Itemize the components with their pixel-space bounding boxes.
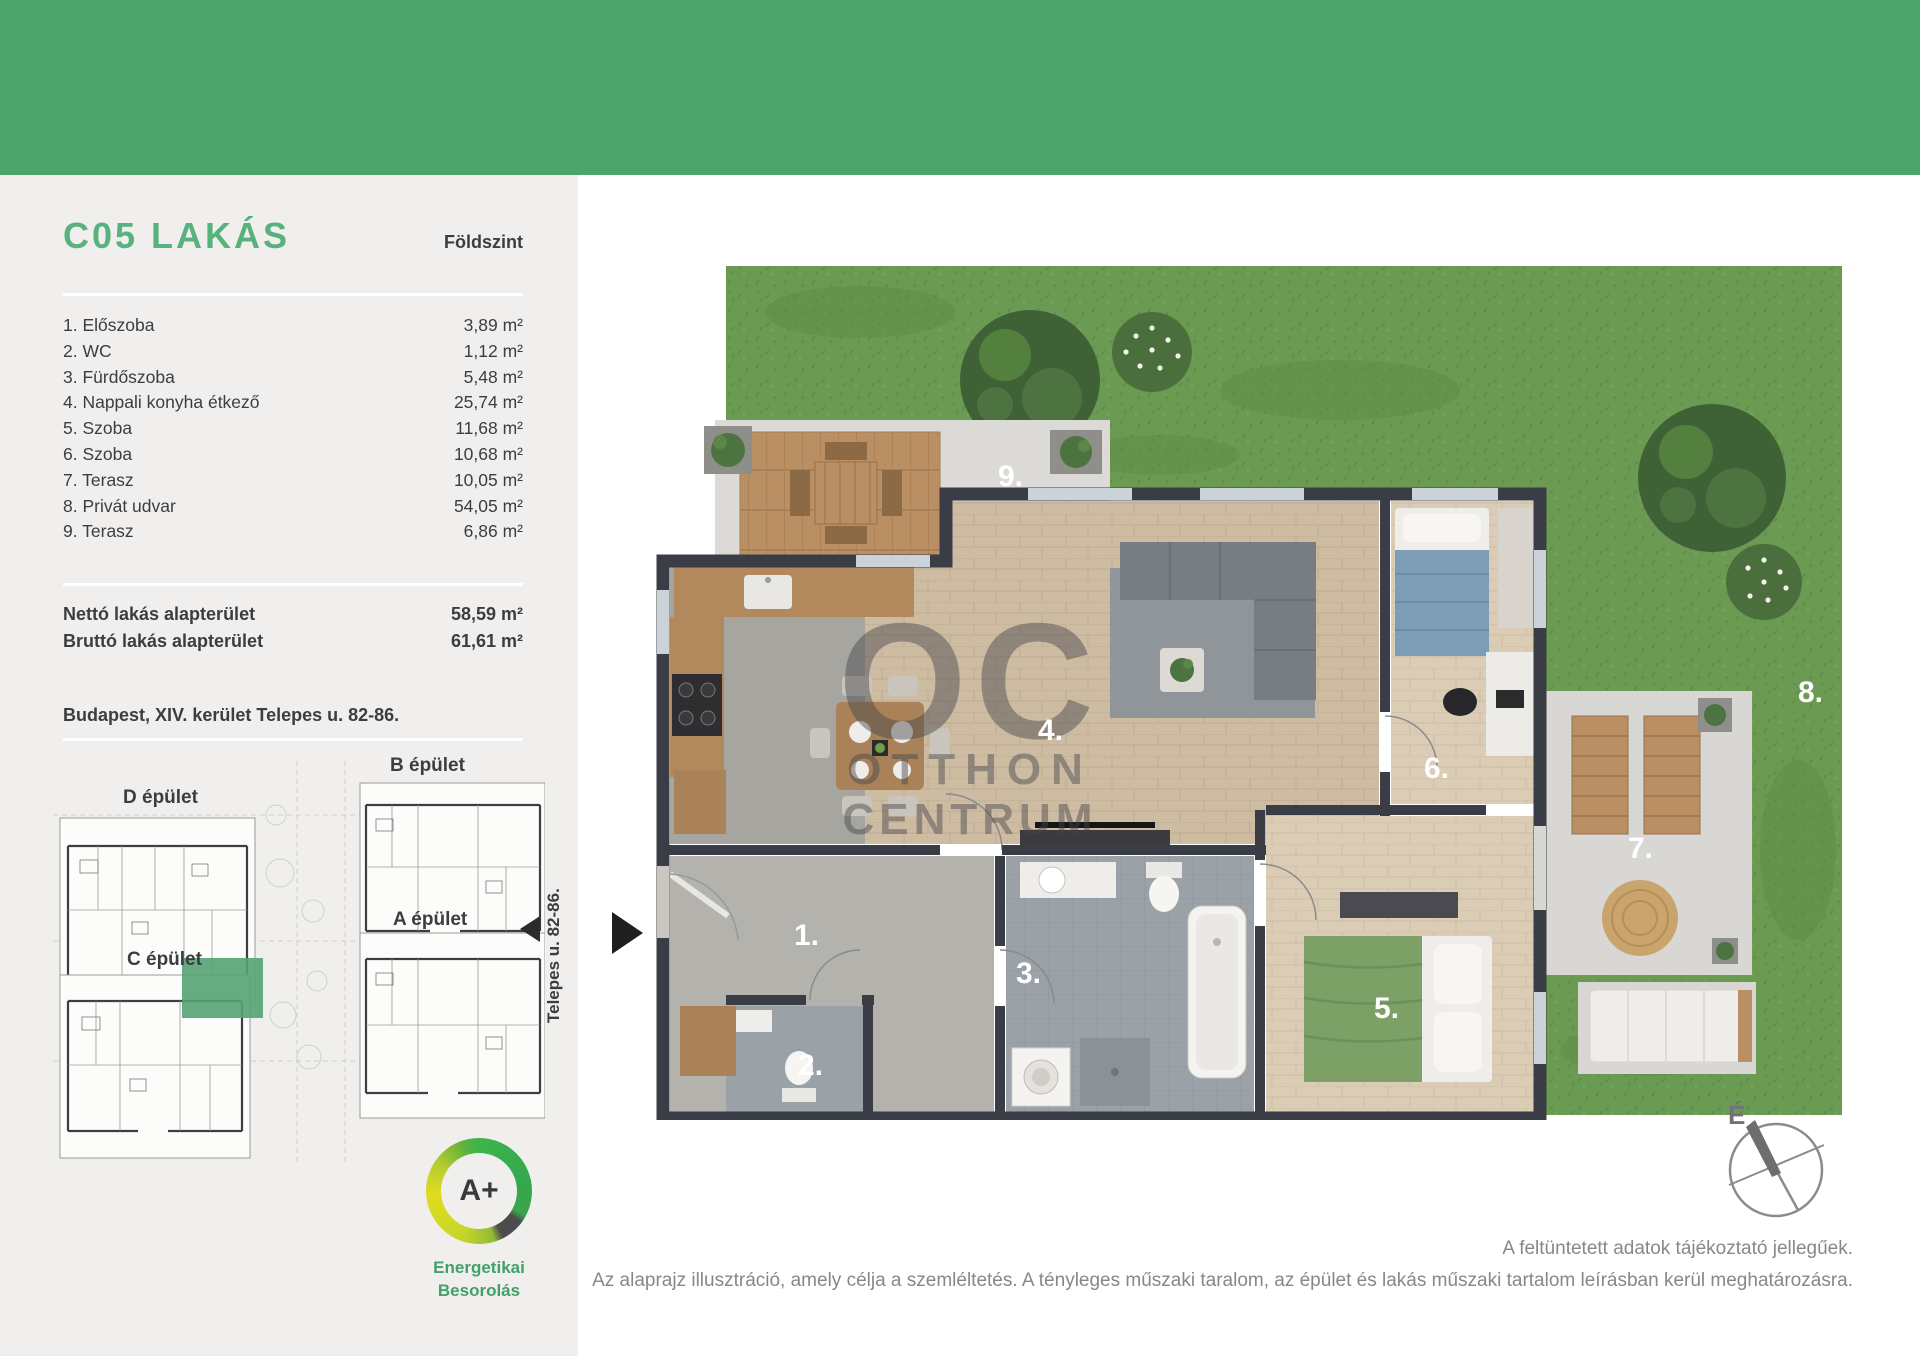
sidebar: C05 LAKÁS Földszint 1. Előszoba3,89 m² 2… [0, 175, 578, 1356]
room-area: 1,12 m² [464, 339, 523, 365]
room-area: 54,05 m² [454, 494, 523, 520]
garden-daybed [1578, 982, 1756, 1074]
cooktop [672, 674, 722, 736]
total-net-row: Nettó lakás alapterület58,59 m² [63, 601, 523, 628]
lounger [1644, 716, 1700, 834]
room-row: 4. Nappali konyha étkező25,74 m² [63, 390, 523, 416]
entrance-opening [657, 866, 669, 938]
room-number-4: 4. [1038, 714, 1063, 747]
room6-bed [1395, 508, 1489, 656]
room-row: 8. Privát udvar54,05 m² [63, 494, 523, 520]
terrace-door-opening [1534, 826, 1546, 910]
room-row: 6. Szoba10,68 m² [63, 442, 523, 468]
watermark-otthon: OTTHON [847, 745, 1093, 794]
room-number-9: 9. [998, 460, 1023, 493]
room-label: 9. Terasz [63, 519, 134, 545]
compass: É [1720, 1092, 1855, 1237]
divider-top [63, 293, 523, 296]
tree-right [1638, 404, 1786, 552]
room-label: 5. Szoba [63, 416, 132, 442]
compass-needle-tail [1776, 1170, 1798, 1210]
brochure-page: C05 LAKÁS Földszint 1. Előszoba3,89 m² 2… [0, 0, 1920, 1356]
room-area: 11,68 m² [455, 416, 523, 442]
address: Budapest, XIV. kerület Telepes u. 82-86. [63, 705, 523, 726]
room-row: 1. Előszoba3,89 m² [63, 313, 523, 339]
energy-label: Energetikai Besorolás [424, 1256, 534, 1302]
room-row: 5. Szoba11,68 m² [63, 416, 523, 442]
energy-badge: A+ Energetikai Besorolás [424, 1138, 534, 1302]
floor-label: Földszint [444, 232, 523, 253]
room-number-8: 8. [1798, 676, 1823, 709]
total-net-label: Nettó lakás alapterület [63, 601, 255, 628]
room-number-5: 5. [1374, 992, 1399, 1025]
room-area: 6,86 m² [464, 519, 523, 545]
room-label: 4. Nappali konyha étkező [63, 390, 260, 416]
flower-bush-top [1112, 312, 1192, 392]
total-gross-label: Bruttó lakás alapterület [63, 628, 263, 655]
room-label: 1. Előszoba [63, 313, 154, 339]
terrace9-deck [740, 432, 940, 561]
room-label: 7. Terasz [63, 468, 134, 494]
totals: Nettó lakás alapterület58,59 m² Bruttó l… [63, 601, 523, 655]
divider-address [63, 738, 523, 741]
energy-rating: A+ [441, 1153, 517, 1229]
room-row: 9. Terasz6,86 m² [63, 519, 523, 545]
flower-bush-right [1726, 544, 1802, 620]
siteplan-drawing: D épület B épület A épület C épület [45, 753, 545, 1173]
room-number-6: 6. [1424, 752, 1449, 785]
room-label: 3. Fürdőszoba [63, 365, 175, 391]
apartment-title: C05 LAKÁS [63, 215, 290, 257]
divider-mid [63, 583, 523, 586]
header-green-bar [0, 0, 1920, 175]
siteplan-label-c: C épület [127, 949, 203, 970]
round-rug [1602, 880, 1678, 956]
lounger [1572, 716, 1628, 834]
entrance-arrow-icon [612, 912, 643, 954]
disclaimer-line2: Az alaprajz illusztráció, amely célja a … [592, 1270, 1853, 1292]
energy-label-line1: Energetikai [424, 1256, 534, 1279]
room-number-3: 3. [1016, 957, 1041, 990]
room-label: 2. WC [63, 339, 112, 365]
street-label-vertical: Telepes u. 82-86. [544, 838, 572, 1023]
title-row: C05 LAKÁS Földszint [63, 215, 523, 257]
hall-cabinet [680, 1006, 736, 1076]
total-net-value: 58,59 m² [451, 601, 523, 628]
street-direction-arrow-icon [520, 916, 540, 942]
room-list: 1. Előszoba3,89 m² 2. WC1,12 m² 3. Fürdő… [63, 313, 523, 545]
siteplan-label-d: D épület [123, 787, 199, 808]
room-label: 8. Privát udvar [63, 494, 176, 520]
room5-wardrobe [1340, 892, 1458, 918]
kitchen-cabinet [674, 770, 726, 834]
siteplan-label-b: B épület [390, 755, 466, 776]
energy-ring: A+ [426, 1138, 532, 1244]
compass-north-label: É [1728, 1100, 1745, 1130]
room-row: 2. WC1,12 m² [63, 339, 523, 365]
toilet [1146, 862, 1182, 878]
siteplan-building-a [360, 933, 545, 1118]
room-area: 5,48 m² [464, 365, 523, 391]
floorplan-render: OC OTTHON CENTRUM 9. 4. 6. 8. 7. 1. 3. 2… [640, 250, 1860, 1120]
watermark-centrum: CENTRUM [843, 795, 1098, 844]
sofa-area [1110, 542, 1316, 718]
room-row: 3. Fürdőszoba5,48 m² [63, 365, 523, 391]
disclaimer-line1: A feltüntetett adatok tájékoztató jelleg… [1502, 1238, 1853, 1260]
room-row: 7. Terasz10,05 m² [63, 468, 523, 494]
room-number-1: 1. [794, 919, 819, 952]
total-gross-row: Bruttó lakás alapterület61,61 m² [63, 628, 523, 655]
room-number-7: 7. [1628, 832, 1653, 865]
energy-label-line2: Besorolás [424, 1279, 534, 1302]
room-area: 25,74 m² [454, 390, 523, 416]
compass-north-needle-icon [1746, 1120, 1781, 1177]
room-area: 3,89 m² [464, 313, 523, 339]
total-gross-value: 61,61 m² [451, 628, 523, 655]
room-area: 10,68 m² [454, 442, 523, 468]
room-label: 6. Szoba [63, 442, 132, 468]
room6-wardrobe [1498, 508, 1534, 628]
siteplan-label-a: A épület [393, 909, 468, 930]
room-area: 10,05 m² [454, 468, 523, 494]
room-number-2: 2. [798, 1049, 823, 1082]
